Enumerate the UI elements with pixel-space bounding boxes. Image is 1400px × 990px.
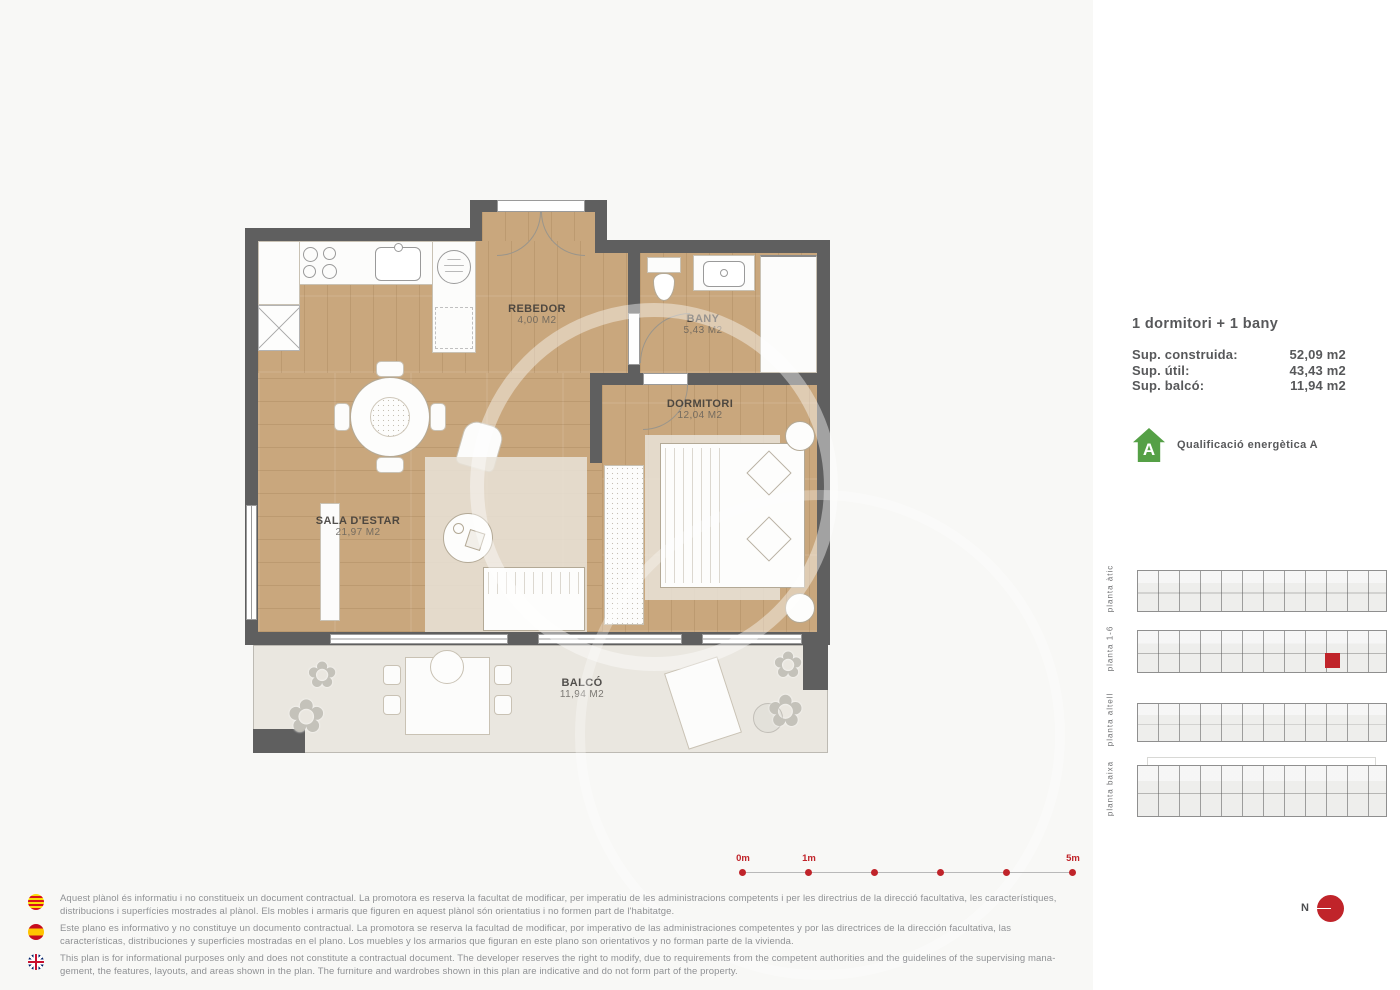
surface-label: Sup. útil: [1132, 363, 1190, 379]
dining-chair [334, 403, 350, 431]
entry-door-opening [497, 200, 585, 212]
disclaimer-row: Este plano es informativo y no constituy… [28, 923, 1078, 948]
scale-dot [1069, 869, 1076, 876]
balcony-chair [494, 665, 512, 685]
side-table [785, 593, 815, 623]
kitchen-sink [375, 247, 421, 281]
hob-burner-icon [323, 247, 336, 260]
side-window [246, 505, 257, 620]
energy-rating-icon: A [1133, 428, 1165, 462]
dining-chair [430, 403, 446, 431]
wall [590, 373, 602, 463]
sofa-cushion [488, 572, 580, 594]
dining-chair [376, 361, 404, 377]
scale-dot [739, 869, 746, 876]
floor-label-altell: planta altell [1106, 680, 1115, 760]
balcony-chair [383, 665, 401, 685]
wall [803, 645, 828, 690]
wall [245, 228, 482, 241]
uk-flag-icon [28, 954, 44, 970]
page: ✿ ✿ ✿ ✿ REBEDOR 4,00 M2 BANY 5,43 M2 DOR… [0, 0, 1400, 990]
surface-label: Sup. balcó: [1132, 378, 1204, 394]
balcony-floor [253, 645, 828, 753]
wall [595, 240, 830, 253]
coffee-table-item [453, 523, 464, 534]
side-table [753, 703, 783, 733]
surface-value: 43,43 m2 [1289, 363, 1346, 379]
balcony-plant-pot [430, 650, 464, 684]
wall [590, 373, 830, 385]
floor-thumbnail-altell[interactable] [1137, 703, 1387, 742]
bathroom-door-opening [628, 313, 640, 365]
balcony-slider-window [702, 634, 802, 644]
energy-rating-label: Qualificació energètica A [1177, 439, 1318, 451]
scale-line [742, 872, 1073, 873]
surface-row: Sup. construida: 52,09 m2 [1132, 347, 1346, 363]
wardrobe [604, 465, 644, 625]
north-label: N [1301, 902, 1309, 914]
floor-thumbnail-atic[interactable] [1137, 570, 1387, 612]
centerpiece [370, 397, 410, 437]
sidebar: 1 dormitori + 1 bany Sup. construida: 52… [1093, 0, 1400, 990]
floor-thumbnail-baixa[interactable] [1137, 765, 1387, 817]
disclaimer-row: This plan is for informational purposes … [28, 953, 1078, 978]
balcony-slider-window [330, 634, 508, 644]
scale-dot [1003, 869, 1010, 876]
catalonia-flag-icon [28, 894, 44, 910]
disclaimer-text: This plan is for informational purposes … [60, 953, 1078, 978]
balcony-slider-window [538, 634, 682, 644]
dining-chair [376, 457, 404, 473]
scale-dot [805, 869, 812, 876]
disclaimer-text: Este plano es informativo y no constituy… [60, 923, 1078, 948]
energy-rating: A Qualificació energètica A [1133, 428, 1318, 462]
surface-row: Sup. útil: 43,43 m2 [1132, 363, 1346, 379]
disclaimer-row: Aquest plànol és informatiu i no constit… [28, 893, 1078, 918]
toilet-tank [647, 257, 681, 273]
scale-dot [937, 869, 944, 876]
scale-label-1m: 1m [797, 853, 821, 864]
balcony-chair [494, 695, 512, 715]
bedroom-door-opening [643, 373, 688, 385]
faucet-icon [394, 243, 403, 252]
kitchen-cabinet [435, 307, 473, 349]
surface-row: Sup. balcó: 11,94 m2 [1132, 378, 1346, 394]
unit-title: 1 dormitori + 1 bany [1132, 316, 1278, 332]
wall [817, 240, 830, 645]
spain-flag-icon [28, 924, 44, 940]
hob-burner-icon [322, 264, 337, 279]
scale-label-5m: 5m [1061, 853, 1085, 864]
floor-plan: ✿ ✿ ✿ ✿ REBEDOR 4,00 M2 BANY 5,43 M2 DOR… [245, 195, 830, 761]
floor-thumbnail-1-6[interactable] [1137, 630, 1387, 673]
faucet-icon [720, 269, 728, 277]
side-table [785, 421, 815, 451]
scale-label-0m: 0m [731, 853, 755, 864]
scale-dot [871, 869, 878, 876]
balcony-chair [383, 695, 401, 715]
washing-machine [437, 250, 471, 284]
energy-letter: A [1143, 438, 1155, 462]
wall [253, 729, 305, 753]
kitchen-tall-unit [258, 241, 300, 305]
floor-label-1-6: planta 1-6 [1106, 609, 1115, 689]
hob-burner-icon [303, 247, 318, 262]
disclaimer-text: Aquest plànol és informatiu i no constit… [60, 893, 1078, 918]
highlighted-unit-marker [1325, 653, 1340, 668]
shower [760, 255, 817, 373]
surface-table: Sup. construida: 52,09 m2 Sup. útil: 43,… [1132, 347, 1346, 394]
surface-label: Sup. construida: [1132, 347, 1238, 363]
north-compass-icon [1317, 895, 1344, 922]
shaft [258, 305, 300, 351]
sideboard [320, 503, 340, 621]
floor-label-baixa: planta baixa [1106, 749, 1115, 829]
surface-value: 11,94 m2 [1290, 378, 1346, 394]
surface-value: 52,09 m2 [1289, 347, 1346, 363]
bed-duvet [665, 448, 723, 583]
hob-burner-icon [303, 265, 316, 278]
